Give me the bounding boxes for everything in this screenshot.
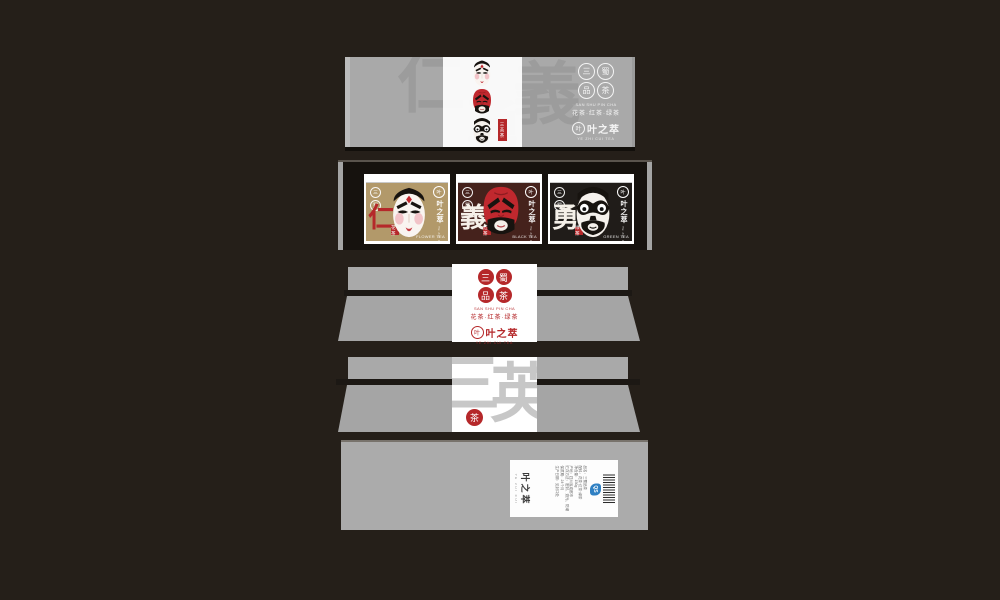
leaf-logo-icon: 叶 bbox=[572, 122, 585, 135]
red-opera-mask-icon bbox=[470, 88, 494, 116]
barcode bbox=[603, 474, 615, 504]
tea-type-english: FLOWER TEA bbox=[416, 234, 445, 239]
brand-logo-sub: YE ZHI CUI TEA bbox=[476, 341, 513, 345]
seal-stamp: 茶 bbox=[496, 287, 512, 303]
lid-right-edge-shade bbox=[632, 57, 635, 147]
label-brand-zone: 叶之萃 YE ZHI CUI bbox=[510, 460, 532, 517]
lid-red-tag: 三英茶 bbox=[498, 119, 507, 141]
seal-stamp: 蜀 bbox=[496, 269, 512, 285]
seal-stamp: 品 bbox=[478, 287, 494, 303]
black-opera-mask-icon bbox=[470, 117, 494, 145]
info-line: 产地：四川省成都市 bbox=[569, 465, 574, 512]
brand-logo-name: 叶之萃 bbox=[519, 460, 532, 517]
seal-stamp: 茶 bbox=[597, 82, 614, 99]
seal-stamp: 三 bbox=[554, 187, 565, 198]
brand-seal-grid: 三 蜀 品 茶 bbox=[578, 63, 614, 99]
pack-logo-column: 叶 叶之萃 YE ZHI CUI TEA bbox=[525, 186, 537, 241]
barcode-zone: QS bbox=[590, 460, 618, 517]
lid-center-band: 三英茶 bbox=[443, 57, 522, 147]
leaf-logo-icon: 叶 bbox=[471, 326, 484, 339]
brand-logo-name: 叶之萃 bbox=[587, 121, 620, 136]
seal-stamp: 三 bbox=[370, 187, 381, 198]
brand-tagline: 花茶·红茶·绿茶 bbox=[572, 108, 620, 117]
side-center-band: 三 蜀 品 茶 SAN SHU PIN CHA 花茶·红茶·绿茶 叶 叶之萃 Y… bbox=[452, 264, 537, 342]
back-center-band: 三 英 茶 bbox=[452, 357, 537, 432]
lid-brand-block: 三 蜀 品 茶 SAN SHU PIN CHA 花茶·红茶·绿茶 叶 叶之萃 Y… bbox=[561, 63, 631, 141]
rotated-label-content: QS 品名：三蜀品茶 配料：花茶·红茶·绿茶 净含量：150g 产地：四川省成都… bbox=[510, 460, 618, 517]
tea-pack-bravery: 三 蜀 勇 绿茶 叶 叶之萃 YE ZHI CUI TEA GREEN TEA bbox=[548, 174, 634, 244]
design-board: 仁 義 勇 三英茶 三 蜀 品 茶 SAN SHU PIN CHA 花茶·红茶·… bbox=[0, 0, 1000, 600]
brand-tagline: 花茶·红茶·绿茶 bbox=[471, 312, 519, 321]
lid-drop-shadow bbox=[345, 147, 635, 151]
qs-certification-icon: QS bbox=[590, 483, 601, 495]
white-opera-mask-icon bbox=[470, 59, 494, 87]
tray-right-edge bbox=[647, 162, 652, 250]
info-line: 品名：三蜀品茶 bbox=[582, 465, 587, 512]
info-label: QS 品名：三蜀品茶 配料：花茶·红茶·绿茶 净含量：150g 产地：四川省成都… bbox=[510, 460, 618, 517]
brand-seal-grid: 三 蜀 品 茶 bbox=[478, 269, 512, 303]
pack-lid-strip bbox=[458, 176, 540, 183]
red-seal-stamp: 茶 bbox=[466, 409, 483, 426]
white-opera-mask-icon bbox=[387, 185, 431, 239]
info-line: 生产日期：见封口处 bbox=[555, 465, 560, 512]
seal-stamp: 蜀 bbox=[597, 63, 614, 80]
pack-front-panel: 三 蜀 仁 花茶 叶 叶之萃 YE ZHI CUI TEA FLOWER TEA bbox=[366, 183, 448, 241]
seal-stamp: 品 bbox=[578, 82, 595, 99]
brand-logo-name: 叶之萃 bbox=[618, 200, 628, 224]
pack-lid-strip bbox=[550, 176, 632, 183]
leaf-logo-icon: 叶 bbox=[525, 186, 537, 198]
seal-stamp: 三 bbox=[478, 269, 494, 285]
leaf-logo-icon: 叶 bbox=[617, 186, 629, 198]
brand-logo-row: 叶 叶之萃 bbox=[572, 121, 620, 136]
pack-logo-column: 叶 叶之萃 YE ZHI CUI TEA bbox=[433, 186, 445, 241]
brand-logo-name: 叶之萃 bbox=[526, 200, 536, 224]
brand-logo-name: 叶之萃 bbox=[434, 200, 444, 224]
seal-stamp: 三 bbox=[578, 63, 595, 80]
box-lid-panel: 仁 義 勇 三英茶 三 蜀 品 茶 SAN SHU PIN CHA 花茶·红茶·… bbox=[345, 57, 635, 147]
black-opera-mask-icon bbox=[571, 185, 615, 239]
brand-pinyin: SAN SHU PIN CHA bbox=[474, 306, 515, 311]
brand-logo-sub: YE ZHI CUI bbox=[514, 460, 518, 517]
pack-front-panel: 三 蜀 義 红茶 叶 叶之萃 YE ZHI CUI TEA BLACK TEA bbox=[458, 183, 540, 241]
open-box-tray: 三 蜀 仁 花茶 叶 叶之萃 YE ZHI CUI TEA FLOWER TEA… bbox=[338, 160, 652, 250]
tray-left-edge bbox=[338, 162, 343, 250]
pack-logo-column: 叶 叶之萃 YE ZHI CUI TEA bbox=[617, 186, 629, 241]
brand-pinyin: SAN SHU PIN CHA bbox=[575, 102, 616, 107]
pack-front-panel: 三 蜀 勇 绿茶 叶 叶之萃 YE ZHI CUI TEA GREEN TEA bbox=[550, 183, 632, 241]
tea-pack-benevolence: 三 蜀 仁 花茶 叶 叶之萃 YE ZHI CUI TEA FLOWER TEA bbox=[364, 174, 450, 244]
pack-lid-strip bbox=[366, 176, 448, 183]
side-brand-block: 三 蜀 品 茶 SAN SHU PIN CHA 花茶·红茶·绿茶 叶 叶之萃 Y… bbox=[452, 269, 537, 345]
seal-stamp: 三 bbox=[462, 187, 473, 198]
back-watermark-char: 英 bbox=[490, 363, 537, 427]
brand-logo-row: 叶 叶之萃 bbox=[471, 325, 519, 340]
red-opera-mask-icon bbox=[479, 185, 523, 239]
tea-type-english: GREEN TEA bbox=[603, 234, 629, 239]
tea-pack-righteousness: 三 蜀 義 红茶 叶 叶之萃 YE ZHI CUI TEA BLACK TEA bbox=[456, 174, 542, 244]
info-line: 配料：花茶·红茶·绿茶 bbox=[578, 465, 583, 512]
leaf-logo-icon: 叶 bbox=[433, 186, 445, 198]
brand-logo-sub: YE ZHI CUI TEA bbox=[577, 137, 614, 141]
lid-left-edge-highlight bbox=[345, 57, 350, 147]
info-line: 贮存方法：密封、避光、防潮 bbox=[564, 465, 569, 512]
tea-type-english: BLACK TEA bbox=[512, 234, 537, 239]
bottom-panel: QS 品名：三蜀品茶 配料：花茶·红茶·绿茶 净含量：150g 产地：四川省成都… bbox=[341, 440, 648, 530]
brand-logo-name: 叶之萃 bbox=[486, 325, 519, 340]
product-info-text: 品名：三蜀品茶 配料：花茶·红茶·绿茶 净含量：150g 产地：四川省成都市 贮… bbox=[532, 460, 590, 517]
